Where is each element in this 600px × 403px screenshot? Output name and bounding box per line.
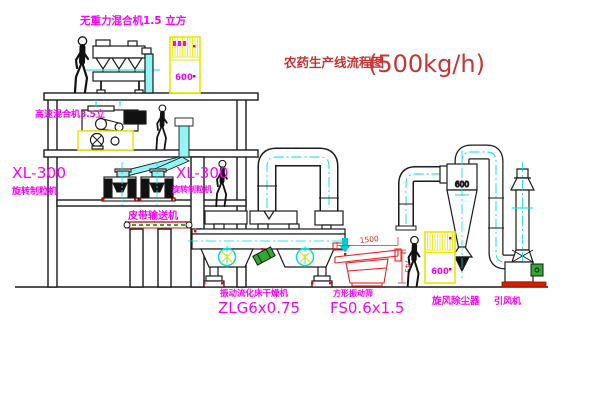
- fan-housing: [505, 262, 533, 282]
- page-title-capacity: (500kg/h): [368, 50, 485, 78]
- induced-draft-fan: [502, 262, 546, 287]
- label-screen-model: FS0.6x1.5: [330, 299, 404, 317]
- dryer-hood-center: [250, 211, 297, 224]
- label-screen-name: 方形振动筛: [333, 288, 373, 298]
- label-dryer-model: ZLG6x0.75: [218, 299, 300, 317]
- dryer-trough: [192, 234, 345, 249]
- process-flow-diagram: 600: [0, 0, 600, 403]
- conveyor-support-column: [158, 229, 171, 287]
- label-high-speed-mixer: 高速混合机3.5立: [35, 108, 105, 120]
- dryer-flange: [192, 229, 345, 234]
- control-cabinet-1: 600: [170, 37, 200, 93]
- dryer-hood-left: [205, 211, 247, 224]
- dryer-hood-right: [315, 211, 343, 225]
- floor-slab-top: [44, 93, 258, 100]
- cabinet2-panel-text: 600: [431, 267, 449, 277]
- label-fan: 引风机: [494, 295, 521, 307]
- dryer-exhaust-duct: [257, 157, 339, 211]
- gravity-mixer: [86, 40, 160, 93]
- label-gravity-mixer: 无重力混合机1.5 立方: [79, 14, 187, 27]
- high-speed-mixer: [78, 100, 146, 150]
- dim-1500: 1500: [359, 234, 379, 245]
- duct-bottom-flange: [396, 226, 416, 230]
- label-dryer-name: 振动流化床干燥机: [220, 288, 289, 299]
- fan-base: [502, 282, 546, 287]
- control-cabinet-2: 600: [425, 232, 455, 283]
- label-belt-conveyor: 皮带输送机: [127, 209, 178, 222]
- label-cyclone: 旋风除尘器: [431, 295, 480, 307]
- fan-motor: [531, 264, 543, 276]
- fluid-bed-dryer: [188, 211, 350, 287]
- vibration-motor: [253, 247, 275, 265]
- floor-slab-middle: [44, 150, 258, 157]
- cabinet1-panel-text: 600: [175, 73, 193, 83]
- label-granulator-center-name: 旋转制粒机: [171, 184, 212, 194]
- label-granulator-left-model: XL-300: [12, 164, 66, 182]
- conveyor-support-column: [130, 229, 143, 287]
- vibrating-screen: 1500 745: [333, 234, 411, 286]
- mixer-drop-pipe: [145, 54, 153, 93]
- person-middle-floor: [156, 105, 166, 149]
- label-granulator-center-model: XL-300: [176, 164, 228, 182]
- diagram-canvas: 600: [0, 0, 600, 403]
- person-top-floor: [75, 37, 88, 92]
- cyclone-size-text: 600: [455, 180, 470, 189]
- cyclone-feed-duct: [396, 174, 441, 230]
- mixer-yellow-frame: [78, 131, 133, 150]
- person-near-screen: [408, 236, 420, 286]
- label-granulator-left-name: 旋转制粒机: [11, 185, 57, 197]
